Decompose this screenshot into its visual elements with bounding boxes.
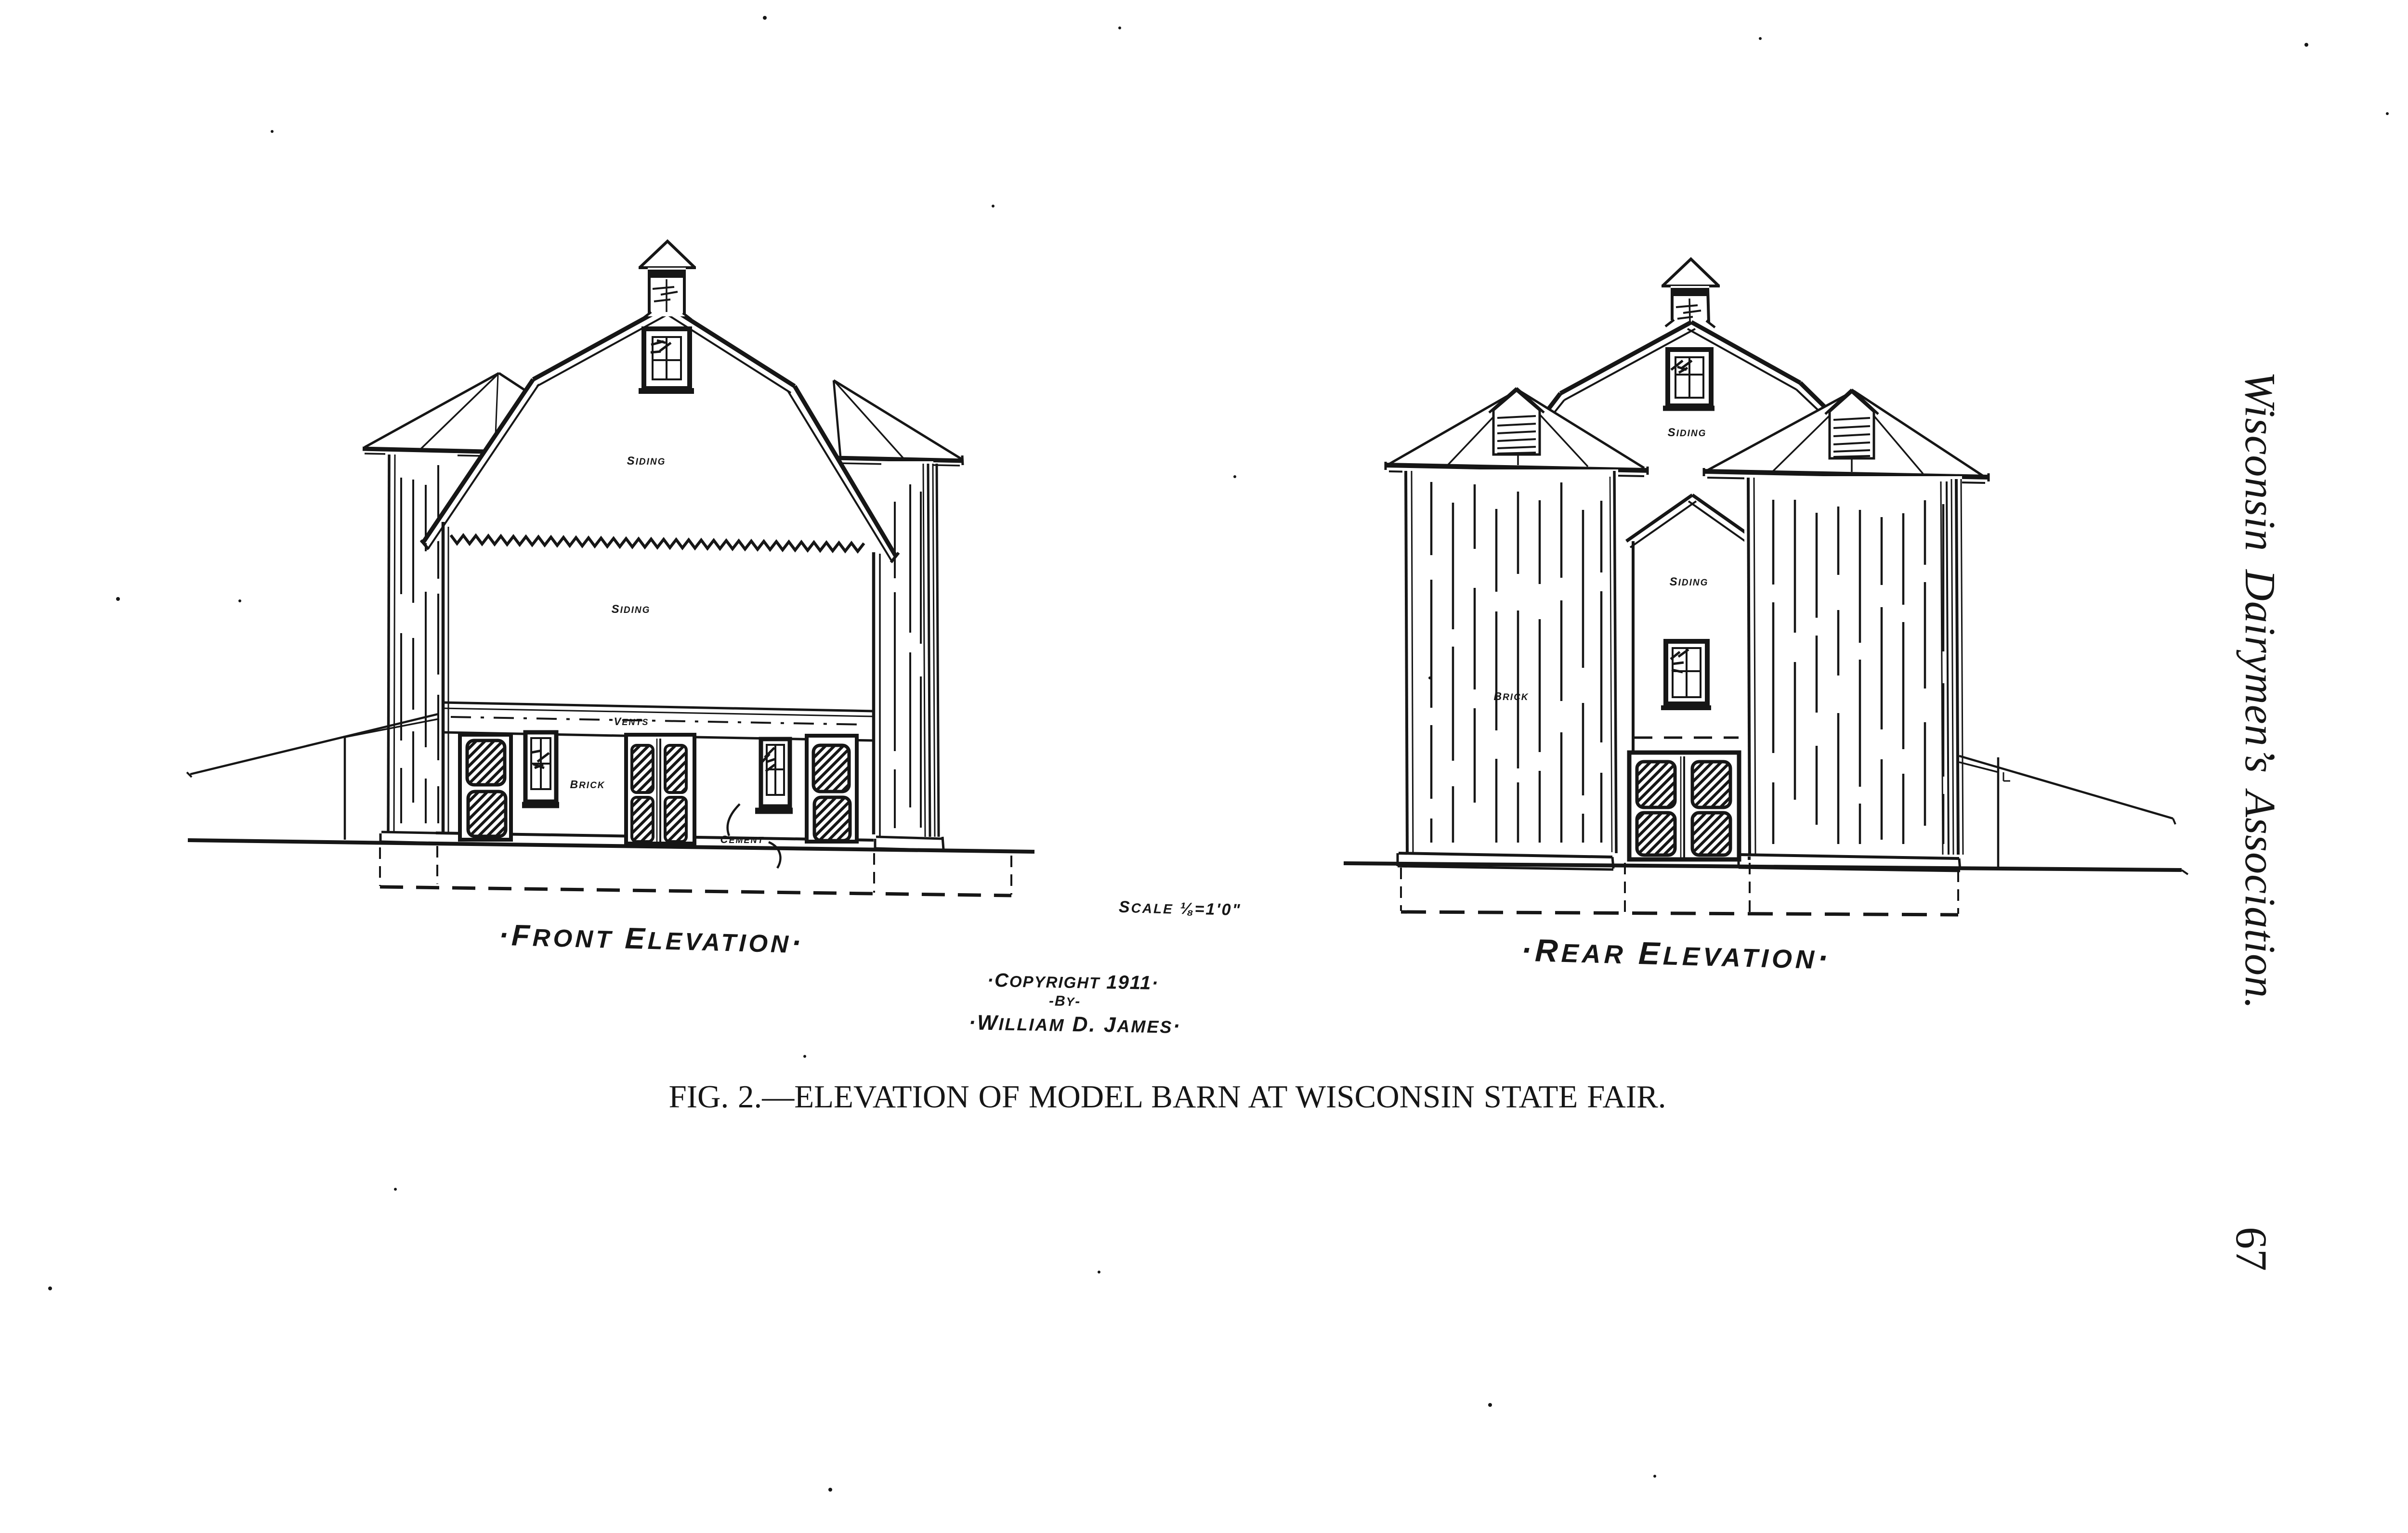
svg-text:SIDING: SIDING [1668, 426, 1707, 439]
svg-text:FIG. 2.—ELEVATION OF MODEL BAR: FIG. 2.—ELEVATION OF MODEL BARN AT WISCO… [668, 1079, 1666, 1115]
svg-text:Wisconsin Dairymen’s Associati: Wisconsin Dairymen’s Association. [2236, 371, 2284, 1009]
svg-text:VENTS: VENTS [614, 715, 649, 728]
svg-text:-BY-: -BY- [1049, 993, 1081, 1009]
svg-text:SIDING: SIDING [1670, 575, 1709, 588]
svg-text:CEMENT: CEMENT [720, 833, 764, 845]
svg-text:SIDING: SIDING [627, 455, 666, 468]
svg-text:SIDING: SIDING [612, 603, 651, 616]
svg-text:67: 67 [2227, 1227, 2276, 1271]
svg-text:·COPYRIGHT 1911·: ·COPYRIGHT 1911· [987, 970, 1159, 994]
